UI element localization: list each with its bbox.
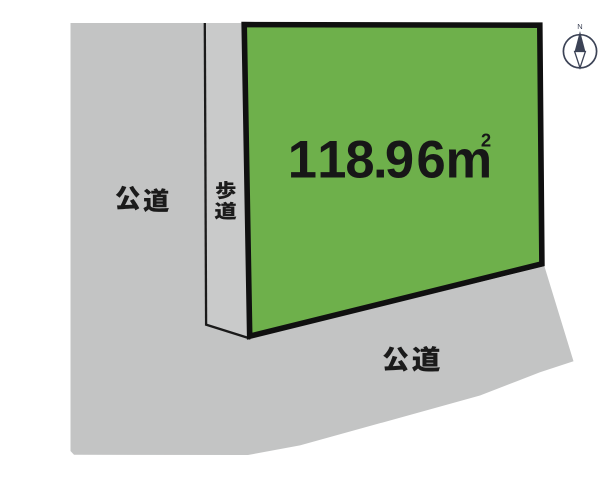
- svg-text:N: N: [577, 22, 582, 31]
- svg-text:2: 2: [481, 129, 491, 150]
- svg-text:118.96m: 118.96m: [288, 131, 492, 190]
